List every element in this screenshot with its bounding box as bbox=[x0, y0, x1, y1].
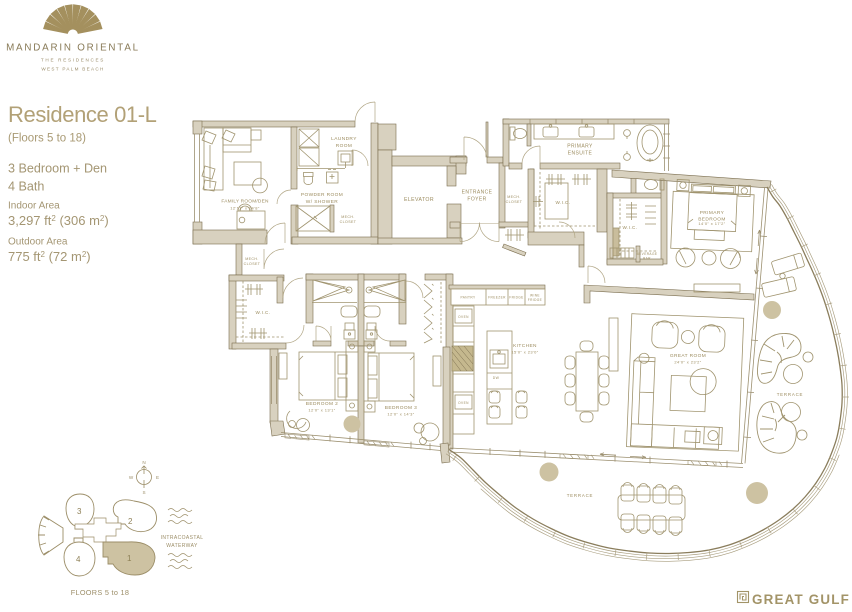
svg-text:GREAT GULF: GREAT GULF bbox=[752, 592, 850, 607]
svg-text:FOYER: FOYER bbox=[467, 197, 486, 203]
svg-text:FRIDGE: FRIDGE bbox=[509, 296, 523, 300]
svg-text:MECH.: MECH. bbox=[507, 195, 521, 199]
svg-text:N: N bbox=[142, 460, 145, 465]
svg-text:(Floors 5 to 18): (Floors 5 to 18) bbox=[8, 133, 86, 145]
svg-text:CLOSET: CLOSET bbox=[244, 262, 261, 266]
svg-text:W.I.C.: W.I.C. bbox=[623, 225, 638, 230]
svg-text:CLOSET: CLOSET bbox=[340, 220, 357, 224]
svg-text:INTRACOASTAL: INTRACOASTAL bbox=[161, 535, 204, 541]
svg-text:OVEN: OVEN bbox=[458, 315, 469, 319]
svg-text:DW: DW bbox=[493, 376, 500, 380]
svg-text:3 Bedroom + Den: 3 Bedroom + Den bbox=[8, 162, 107, 176]
svg-text:TERRACE: TERRACE bbox=[567, 493, 594, 498]
svg-text:2: 2 bbox=[128, 517, 133, 526]
svg-text:MANDARIN ORIENTAL: MANDARIN ORIENTAL bbox=[6, 43, 140, 54]
svg-text:Outdoor Area: Outdoor Area bbox=[8, 237, 68, 248]
svg-text:1: 1 bbox=[127, 554, 132, 563]
svg-text:BEVERAGE: BEVERAGE bbox=[637, 252, 658, 256]
svg-text:PRIMARY: PRIMARY bbox=[567, 144, 593, 150]
svg-text:FLOORS 5 to 18: FLOORS 5 to 18 bbox=[71, 588, 130, 597]
svg-text:OVEN: OVEN bbox=[458, 401, 469, 405]
svg-text:W.I.C.: W.I.C. bbox=[256, 310, 271, 315]
svg-text:MECH.: MECH. bbox=[341, 215, 355, 219]
svg-text:BEDROOM 2: BEDROOM 2 bbox=[306, 401, 338, 407]
svg-text:PANTRY: PANTRY bbox=[460, 296, 476, 300]
svg-text:24'0" x 23'2": 24'0" x 23'2" bbox=[674, 360, 701, 365]
svg-text:15'0" x 23'0": 15'0" x 23'0" bbox=[511, 350, 538, 355]
svg-text:BEDROOM 3: BEDROOM 3 bbox=[385, 405, 417, 411]
svg-text:W/ SHOWER: W/ SHOWER bbox=[306, 199, 339, 205]
svg-text:775 ft2 (72 m2): 775 ft2 (72 m2) bbox=[8, 249, 91, 264]
svg-text:ROOM: ROOM bbox=[336, 143, 353, 149]
svg-text:THE RESIDENCES: THE RESIDENCES bbox=[41, 58, 105, 63]
svg-text:MECH.: MECH. bbox=[245, 257, 259, 261]
svg-text:GREAT ROOM: GREAT ROOM bbox=[670, 353, 706, 359]
svg-text:3,297 ft2 (306 m2): 3,297 ft2 (306 m2) bbox=[8, 213, 109, 228]
svg-text:S: S bbox=[142, 490, 145, 495]
svg-text:BAR: BAR bbox=[643, 257, 651, 261]
svg-text:TERRACE: TERRACE bbox=[777, 392, 804, 397]
svg-text:CLOSET: CLOSET bbox=[506, 200, 523, 204]
svg-text:E: E bbox=[156, 475, 159, 480]
svg-text:ENSUITE: ENSUITE bbox=[568, 151, 593, 157]
svg-text:ENTRANCE: ENTRANCE bbox=[462, 190, 493, 196]
svg-text:W.I.C.: W.I.C. bbox=[556, 200, 571, 205]
svg-text:4 Bath: 4 Bath bbox=[8, 180, 44, 194]
svg-text:14'0" x 17'2": 14'0" x 17'2" bbox=[698, 221, 725, 226]
svg-text:ELEVATOR: ELEVATOR bbox=[404, 197, 434, 203]
svg-text:FRIDGE: FRIDGE bbox=[528, 298, 542, 302]
svg-text:POWDER ROOM: POWDER ROOM bbox=[301, 192, 343, 198]
svg-text:3: 3 bbox=[77, 507, 82, 516]
svg-text:12'11" x 14'8": 12'11" x 14'8" bbox=[230, 206, 260, 211]
svg-text:LAUNDRY: LAUNDRY bbox=[331, 136, 357, 142]
svg-text:12'0" x 13'1": 12'0" x 13'1" bbox=[308, 408, 335, 413]
svg-text:WATERWAY: WATERWAY bbox=[166, 543, 198, 549]
svg-text:PRIMARY: PRIMARY bbox=[700, 210, 725, 216]
svg-text:4: 4 bbox=[76, 555, 81, 564]
svg-text:WINE: WINE bbox=[530, 294, 540, 298]
svg-text:Residence 01-L: Residence 01-L bbox=[8, 102, 157, 127]
svg-text:12'0" x 14'3": 12'0" x 14'3" bbox=[387, 412, 414, 417]
svg-text:FAMILY ROOM/DEN: FAMILY ROOM/DEN bbox=[221, 199, 269, 205]
svg-text:FREEZER: FREEZER bbox=[488, 296, 506, 300]
svg-text:W: W bbox=[129, 475, 134, 480]
svg-text:Indoor Area: Indoor Area bbox=[8, 201, 60, 212]
svg-text:KITCHEN: KITCHEN bbox=[513, 343, 537, 349]
svg-text:WEST PALM BEACH: WEST PALM BEACH bbox=[41, 67, 104, 72]
